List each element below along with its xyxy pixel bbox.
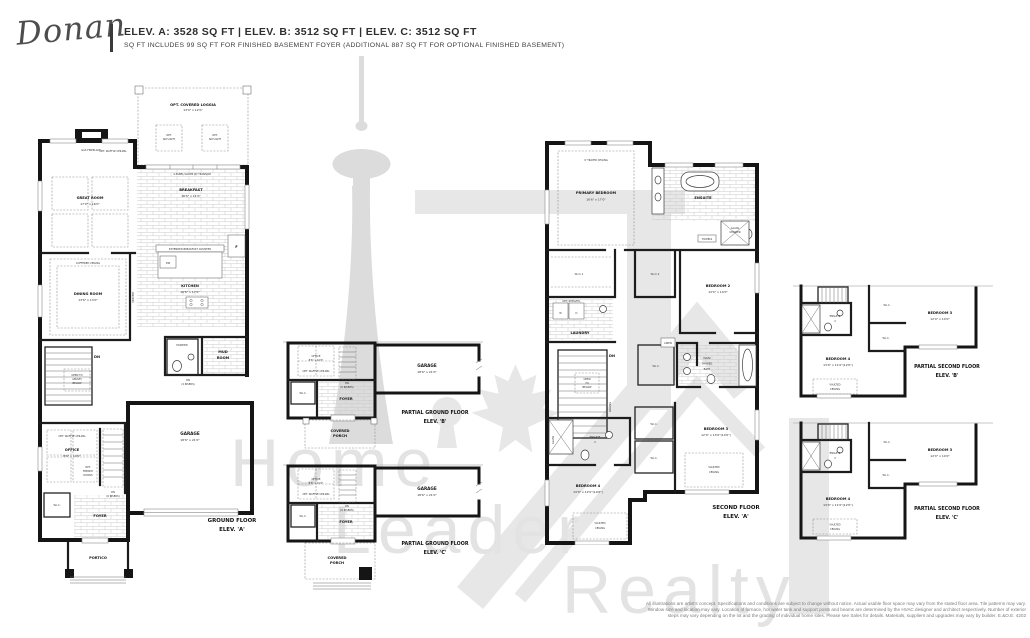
bedroom4-label: BEDROOM 4 <box>576 484 601 488</box>
waffle-ceiling-label: OPT. WAFFLE CEILING <box>303 492 330 496</box>
foyer-label: FOYER <box>339 520 352 524</box>
plan-title-line1: SECOND FLOOR <box>712 505 760 511</box>
waffle-ceiling-label: OPT. WAFFLE CEILING <box>59 434 86 438</box>
svg-text:TO: TO <box>585 381 589 385</box>
svg-text:CEILING: CEILING <box>709 470 719 474</box>
svg-text:BELOW: BELOW <box>72 381 82 385</box>
svg-text:18'6" x 21'0": 18'6" x 21'0" <box>180 438 200 442</box>
ensuite2: ENSUITE 2 <box>802 442 843 470</box>
foyer-label: FOYER <box>339 397 352 401</box>
garage-label: GARAGE <box>417 486 437 491</box>
svg-text:18'6" x 21'0": 18'6" x 21'0" <box>417 370 437 374</box>
open-to-below-label: OPEN <box>584 377 591 381</box>
glass-shower-label: GLASS <box>551 435 555 444</box>
plan-title-line1: PARTIAL GROUND FLOOR <box>401 410 468 416</box>
wic-label: W.I.C. <box>883 303 890 307</box>
ensuite2: ENSUITE 2 <box>802 305 843 333</box>
wic-label: W.I.C. <box>299 514 306 518</box>
breakfast-label: BREAKFAST <box>179 188 203 192</box>
bedroom3-label: BEDROOM 3 <box>928 311 953 315</box>
dn-label: DN <box>111 490 115 494</box>
plan-title: SECOND FLOOR ELEV. 'A' <box>712 505 760 520</box>
svg-text:8'6" x 10'0": 8'6" x 10'0" <box>309 358 324 362</box>
svg-text:18'6" x 21'0": 18'6" x 21'0" <box>417 493 437 497</box>
header-divider <box>110 24 113 52</box>
servery-label: SERVERY <box>131 291 135 303</box>
svg-text:DOORS: DOORS <box>83 473 93 477</box>
elevation-sqft-line: ELEV. A: 3528 SQ FT | ELEV. B: 3512 SQ F… <box>124 26 477 38</box>
partial-ground-floor-plan-elev-c: OFFICE 8'6" x 10'0" OPT. WAFFLE CEILING … <box>283 455 483 610</box>
vaulted-ceiling-label: VAULTED <box>829 523 840 527</box>
plan-title-line2: ELEV. 'C' <box>936 515 959 521</box>
svg-text:SKYLIGHT: SKYLIGHT <box>163 137 176 141</box>
covered-porch: COVERED PORCH <box>305 543 375 589</box>
open-to-below-label: OPEN TO <box>71 373 82 377</box>
bedroom4-label: BEDROOM 4 <box>826 357 851 361</box>
partial-ground-floor-plan-elev-b: OFFICE 8'6" x 10'0" OPT. WAFFLE CEILING … <box>283 330 483 460</box>
plan-title-line2: ELEV. 'A' <box>219 527 245 533</box>
disclaimer-line: steps may vary depending on the lot and … <box>596 613 1026 619</box>
plan-title: PARTIAL GROUND FLOOR ELEV. 'B' <box>401 410 468 425</box>
plan-title-line2: ELEV. 'A' <box>723 514 749 520</box>
svg-text:12'0" x 14'0": 12'0" x 14'0" <box>708 290 728 294</box>
great-room-label: GREAT ROOM <box>77 196 104 200</box>
svg-text:SHARED: SHARED <box>702 362 712 366</box>
covered-porch-label: COVERED <box>330 429 349 433</box>
legal-disclaimer: All illustrations are artist's concept. … <box>596 601 1026 619</box>
loggia-label: OPT. COVERED LOGGIA <box>170 103 216 107</box>
dn-label: DN <box>345 504 349 508</box>
svg-text:PORCH: PORCH <box>333 434 347 438</box>
svg-text:8'6" x 10'0": 8'6" x 10'0" <box>63 454 81 458</box>
wic1-label: W.I.C.1 <box>575 272 584 276</box>
garage-label: GARAGE <box>417 363 437 368</box>
wic-label: W.I.C. <box>882 473 889 477</box>
powder-label: POWDER <box>176 343 187 347</box>
waffle-ceiling-label: OPT. WAFFLE CEILING <box>303 369 330 373</box>
garage: GARAGE 18'6" x 21'0" <box>180 431 200 442</box>
sqft-note-line: SQ FT INCLUDES 99 SQ FT FOR FINISHED BAS… <box>124 42 564 49</box>
dn-label: DN <box>186 378 190 382</box>
bedroom3: BEDROOM 3 12'0" x 13'0"(14'0") VAULTED C… <box>685 427 743 487</box>
wic-label: W.I.C. <box>652 364 659 368</box>
svg-text:13'0" x 11'0"(12'0"): 13'0" x 11'0"(12'0") <box>823 363 853 367</box>
covered-porch-label: COVERED <box>327 556 346 560</box>
svg-text:PORCH: PORCH <box>330 561 344 565</box>
svg-text:13'0" x 12'0"(10'0"): 13'0" x 12'0"(10'0") <box>573 490 603 494</box>
covered-porch: COVERED PORCH <box>303 418 377 448</box>
svg-text:2: 2 <box>834 456 836 460</box>
dining-room: COFFERED CEILING DINING ROOM 13'6" x 13'… <box>50 259 135 335</box>
mud-room-label: MUD <box>218 350 227 354</box>
plan-title: GROUND FLOOR ELEV. 'A' <box>208 518 257 533</box>
svg-text:13'0" x 12'0": 13'0" x 12'0" <box>183 108 203 112</box>
bedroom4: BEDROOM 4 13'0" x 12'0"(10'0") VAULTED C… <box>573 484 627 539</box>
portico-label: PORTICO <box>89 556 107 560</box>
svg-text:2: 2 <box>834 319 836 323</box>
wic-label: W.I.C. <box>883 440 890 444</box>
waffle-ceiling-label: OPT. WAFFLE CEILING <box>100 149 127 153</box>
bedroom3-label: BEDROOM 3 <box>704 427 729 431</box>
svg-text:SHOWER: SHOWER <box>729 230 740 234</box>
glass-shower-label: GLASS <box>731 226 740 230</box>
bedroom2-label: BEDROOM 2 <box>706 284 731 288</box>
ground-floor-plan-elev-a: OPT. COVERED LOGGIA 13'0" x 12'0" OPT. S… <box>30 85 260 590</box>
partial-second-floor-plan-elev-c: ENSUITE 2 W.I.C. W.I.C. BEDROOM 3 12'0" … <box>793 420 993 555</box>
dining-room-label: DINING ROOM <box>74 292 103 296</box>
svg-text:16'6" x 17'0": 16'6" x 17'0" <box>180 290 200 294</box>
railing-label: RAILING <box>608 402 612 412</box>
plan-title: PARTIAL GROUND FLOOR ELEV. 'C' <box>401 541 468 556</box>
svg-text:FRENCH: FRENCH <box>83 469 93 473</box>
svg-text:2: 2 <box>594 440 596 444</box>
plan-title-line1: PARTIAL SECOND FLOOR <box>914 364 980 370</box>
svg-text:(6 RISERS): (6 RISERS) <box>340 385 353 389</box>
wic-label: W.I.C. <box>650 422 657 426</box>
coffered-ceiling-label: COFFERED CEILING <box>76 261 100 265</box>
laundry-label: LAUNDRY <box>570 331 589 335</box>
plan-title-line2: ELEV. 'B' <box>936 373 959 379</box>
office-label: OFFICE <box>65 448 80 452</box>
svg-text:12'0" x 14'0": 12'0" x 14'0" <box>930 317 950 321</box>
ensuite2-label: ENSUITE <box>830 451 841 455</box>
svg-text:CEILING: CEILING <box>595 526 605 530</box>
dn-label: DN <box>94 355 100 359</box>
floor-plan-sheet: Home Leader Realty Donan ELEV. A: 3528 S… <box>0 0 1030 638</box>
plan-title-line2: ELEV. 'C' <box>424 550 447 556</box>
wic-label: W.I.C. <box>882 336 889 340</box>
foyer-label: FOYER <box>93 514 106 518</box>
dn-label: DN <box>345 381 349 385</box>
opt-shelves-label: OPT. SHELVES <box>562 299 580 303</box>
plan-title-line2: ELEV. 'B' <box>424 419 447 425</box>
plan-title-line1: PARTIAL SECOND FLOOR <box>914 506 980 512</box>
svg-text:16'6" x 17'0": 16'6" x 17'0" <box>586 198 606 202</box>
dn-label: DN <box>609 354 615 358</box>
svg-text:ABOVE/: ABOVE/ <box>72 377 82 381</box>
office-label: OFFICE <box>312 354 321 358</box>
partial-second-floor-plan-elev-b: ENSUITE 2 W.I.C. W.I.C. BEDROOM 3 12'0" … <box>793 283 993 408</box>
skylight-label: OPT. <box>212 133 218 137</box>
svg-text:(6 RISERS): (6 RISERS) <box>340 508 353 512</box>
svg-text:ROOM: ROOM <box>217 356 230 360</box>
slider-label: 4-PANEL SLIDER W/ TRANSOM <box>173 172 211 176</box>
primary-bedroom-label: PRIMARY BEDROOM <box>576 191 617 195</box>
svg-text:BELOW: BELOW <box>582 385 592 389</box>
fireplace-label: GAS FIREPLACE <box>81 148 101 152</box>
garage-label: GARAGE <box>180 431 200 436</box>
plan-title-line1: GROUND FLOOR <box>208 518 257 524</box>
dryer-label: D <box>576 311 578 315</box>
wic-label: W.I.C. <box>650 456 657 460</box>
ensuite-label: ENSUITE <box>694 196 712 200</box>
wic2-label: W.I.C.2 <box>651 272 660 276</box>
second-floor-plan-elev-a: 9' TRAYED CEILING PRIMARY BEDROOM 16'6" … <box>535 135 775 550</box>
loggia: OPT. COVERED LOGGIA 13'0" x 12'0" OPT. S… <box>135 86 251 165</box>
svg-text:CEILING: CEILING <box>830 527 840 531</box>
svg-text:13'0" x 11'0"(12'0"): 13'0" x 11'0"(12'0") <box>823 503 853 507</box>
linen-label: LINEN <box>664 341 672 345</box>
ensuite2-label: ENSUITE <box>590 435 601 439</box>
vaulted-ceiling-label: VAULTED <box>829 383 840 387</box>
extended-counter-label: EXTENDED BREAKFAST COUNTER <box>169 247 211 251</box>
plan-title: PARTIAL SECOND FLOOR ELEV. 'B' <box>914 364 980 379</box>
svg-text:(6 RISERS): (6 RISERS) <box>106 494 119 498</box>
office: OPT. WAFFLE CEILING OFFICE 8'6" x 10'0" … <box>47 429 123 498</box>
svg-text:16'6" x 11'0": 16'6" x 11'0" <box>181 194 201 198</box>
bedroom4-label: BEDROOM 4 <box>826 497 851 501</box>
tray-ceiling-label: 9' TRAYED CEILING <box>584 158 608 162</box>
svg-text:12'0" x 14'0": 12'0" x 14'0" <box>930 454 950 458</box>
wic-label: W.I.C. <box>53 503 60 507</box>
svg-text:17'0" x 16'0": 17'0" x 16'0" <box>80 202 100 206</box>
skylight-label: OPT. <box>166 133 172 137</box>
stairs <box>818 287 848 303</box>
svg-text:CEILING: CEILING <box>830 387 840 391</box>
stairs <box>818 424 848 440</box>
great-room: OPT. WAFFLE CEILING GAS FIREPLACE GREAT … <box>52 148 128 247</box>
main-bath-label: MAIN/ <box>703 356 710 360</box>
svg-text:(4 RISERS): (4 RISERS) <box>181 382 194 386</box>
svg-text:13'6" x 13'0": 13'6" x 13'0" <box>78 298 98 302</box>
bedroom2: BEDROOM 2 12'0" x 14'0" <box>706 284 731 294</box>
svg-text:12'0" x 13'0"(14'0"): 12'0" x 13'0"(14'0") <box>701 433 731 437</box>
svg-text:SKYLIGHT: SKYLIGHT <box>209 137 222 141</box>
plan-title: PARTIAL SECOND FLOOR ELEV. 'C' <box>914 506 980 521</box>
wic-label: W.I.C. <box>299 391 306 395</box>
vaulted-ceiling-label: VAULTED <box>708 465 719 469</box>
towels-label: TOWELS <box>702 237 713 241</box>
french-doors-label: OPT. <box>85 465 91 469</box>
ensuite2-label: ENSUITE <box>830 314 841 318</box>
stairs: OPEN TO ABOVE/ BELOW DN <box>45 347 100 405</box>
svg-text:8'6" x 10'0": 8'6" x 10'0" <box>309 481 324 485</box>
svg-text:BATH: BATH <box>704 367 711 371</box>
kitchen-label: KITCHEN <box>181 284 199 288</box>
bedroom3-label: BEDROOM 3 <box>928 448 953 452</box>
office-label: OFFICE <box>312 477 321 481</box>
dishwasher-label: DW <box>166 261 171 265</box>
vaulted-ceiling-label: VAULTED <box>594 521 605 525</box>
plan-title-line1: PARTIAL GROUND FLOOR <box>401 541 468 547</box>
primary-bedroom: 9' TRAYED CEILING PRIMARY BEDROOM 16'6" … <box>558 151 634 245</box>
